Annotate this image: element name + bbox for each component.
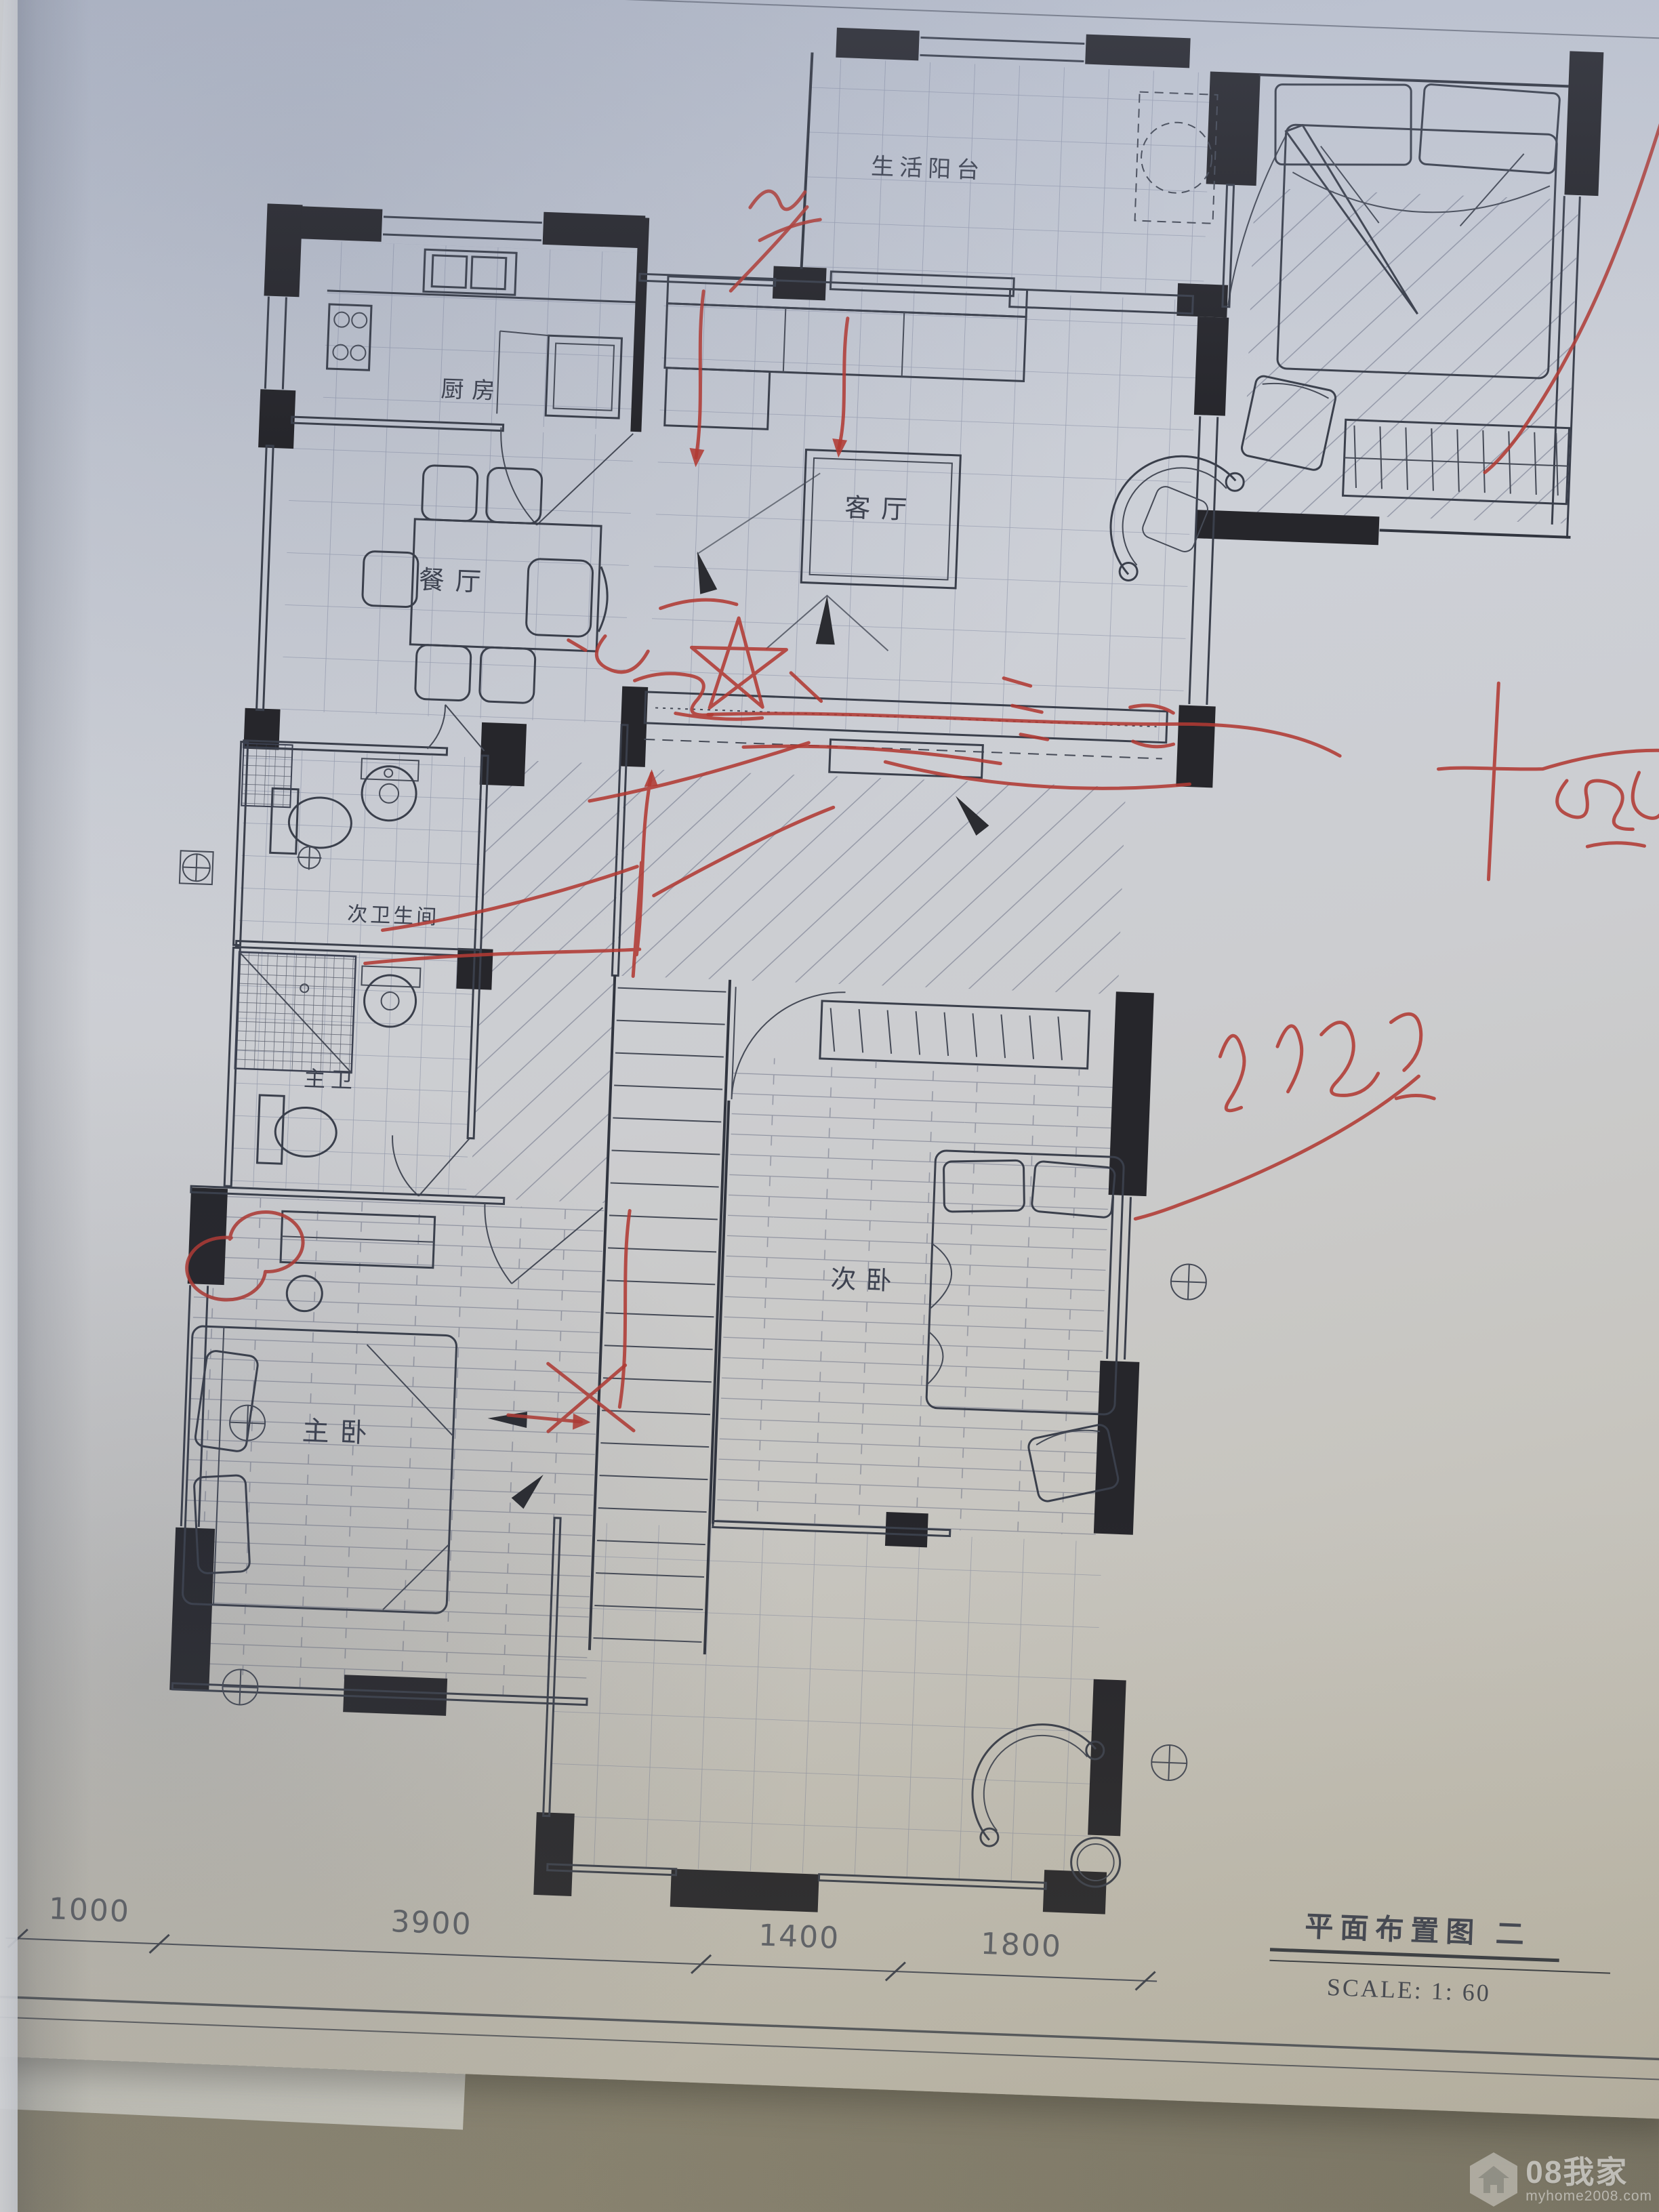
red-margin-cross <box>1435 681 1659 886</box>
watermark-house-icon <box>1467 2151 1520 2208</box>
room-label-bed2: 次卧 <box>830 1265 902 1296</box>
watermark-site: myhome2008.com <box>1525 2189 1652 2203</box>
room-label-dining: 餐厅 <box>418 566 493 597</box>
dim-1800: 1800 <box>980 1927 1063 1964</box>
room-label-living: 客厅 <box>844 494 919 525</box>
red-swoosh <box>1135 1066 1418 1229</box>
watermark-brand: 08我家 <box>1525 2156 1652 2188</box>
blueprint-paper: 生活阳台 厨房 客厅 餐厅 次卫生间 主卫 次卧 主卧 1000 3900 14… <box>0 0 1659 2119</box>
room-label-bath1: 主卫 <box>304 1066 359 1092</box>
drawing-scale: SCALE: 1: 60 <box>1326 1973 1491 2007</box>
dim-1400: 1400 <box>758 1918 840 1955</box>
dimension-line: 1000 3900 1400 1800 <box>5 1890 1159 1991</box>
room-label-bath2: 次卫生间 <box>347 903 440 929</box>
floor-textures <box>173 37 1582 1900</box>
red-closet-stroke <box>619 1210 630 1407</box>
title-block: 平面布置图 二 SCALE: 1: 60 <box>1268 1909 1612 2011</box>
watermark: 08我家 myhome2008.com <box>1467 2151 1652 2208</box>
red-mid-scrawl <box>1218 1007 1437 1118</box>
dim-1000: 1000 <box>48 1891 131 1929</box>
room-label-balcony: 生活阳台 <box>871 154 985 184</box>
drawing-title: 平面布置图 二 <box>1305 1910 1532 1950</box>
room-label-kitchen: 厨房 <box>441 376 504 404</box>
red-margin-scrawl <box>1555 769 1659 849</box>
floor-plan-drawing: 生活阳台 厨房 客厅 餐厅 次卫生间 主卫 次卧 主卧 1000 3900 14… <box>0 0 1659 2119</box>
dim-3900: 3900 <box>390 1904 473 1942</box>
red-long-stroke-2 <box>743 743 1001 763</box>
room-label-bed1: 主卧 <box>302 1416 379 1449</box>
